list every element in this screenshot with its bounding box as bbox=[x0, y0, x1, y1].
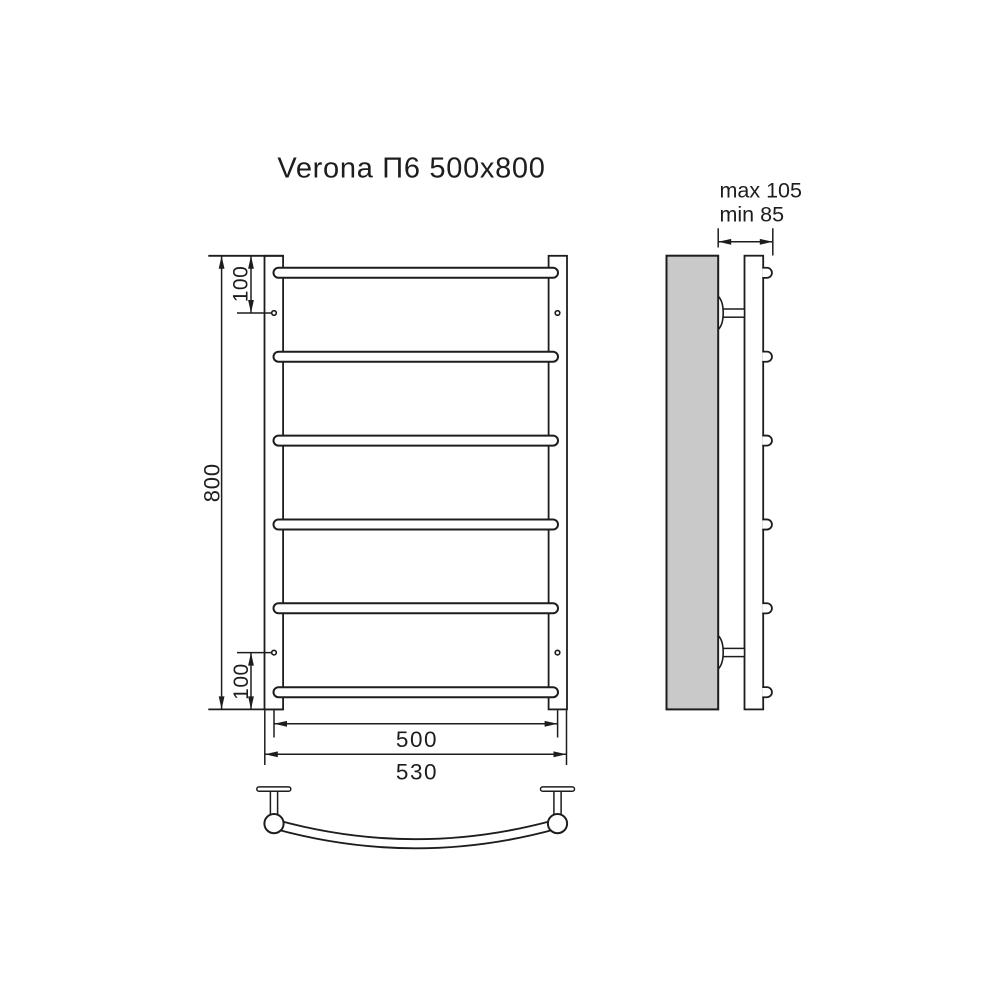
svg-text:800: 800 bbox=[200, 463, 225, 502]
svg-text:100: 100 bbox=[229, 266, 252, 303]
svg-text:min 85: min 85 bbox=[720, 203, 785, 227]
svg-text:Verona П6 500x800: Verona П6 500x800 bbox=[277, 153, 545, 185]
svg-text:100: 100 bbox=[230, 663, 253, 700]
svg-text:530: 530 bbox=[396, 760, 438, 785]
svg-text:500: 500 bbox=[396, 727, 438, 752]
svg-text:max 105: max 105 bbox=[720, 178, 803, 202]
